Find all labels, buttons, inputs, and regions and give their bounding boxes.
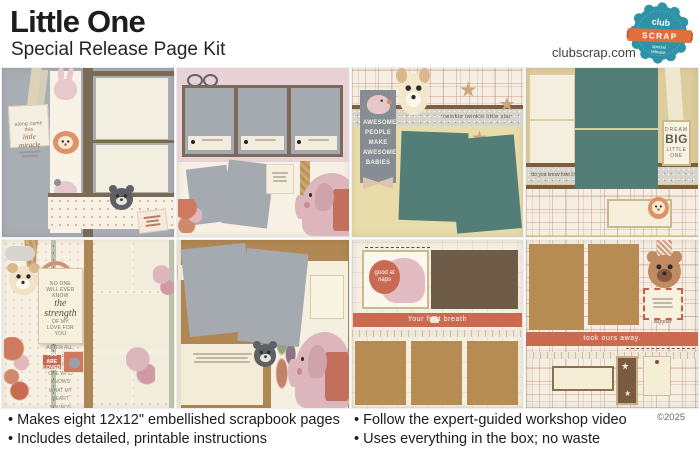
elephant-ear <box>308 345 327 378</box>
flower-cluster <box>126 347 155 387</box>
photo-placeholder <box>588 244 639 325</box>
elephant-blanket <box>333 189 349 231</box>
brown-tag <box>616 356 638 405</box>
fine-print <box>272 172 288 174</box>
layout-preview-2 <box>177 68 349 237</box>
fine-print <box>19 151 41 154</box>
photo-placeholder <box>575 68 658 128</box>
elephant-blanket <box>325 352 348 401</box>
photo-mat <box>96 243 131 290</box>
photo-placeholder <box>431 250 518 309</box>
bear-button-embellishment <box>110 188 132 210</box>
elephant-art-square <box>63 351 84 374</box>
flower-cluster <box>153 265 174 297</box>
journaling-block <box>181 344 263 405</box>
mini-tag <box>136 208 168 233</box>
quote-line: OF MY LOVE FOR YOU <box>44 319 76 337</box>
label-box <box>310 275 344 319</box>
feature-item: Follow the expert-guided workshop video <box>354 411 627 430</box>
feature-item: Uses everything in the box; no waste <box>354 430 627 449</box>
framed-art-square: good at naps <box>362 250 429 309</box>
quote-line-script: the strength <box>44 299 76 319</box>
fine-print <box>653 306 673 308</box>
triple-photo-frame <box>182 85 343 157</box>
layout-gallery: along came this little miracle <box>0 68 700 408</box>
fine-print <box>22 155 39 158</box>
washi-tape-strip <box>526 352 698 360</box>
stitch-garland <box>626 348 695 349</box>
fine-print <box>273 180 288 182</box>
photo-mat <box>530 75 575 119</box>
bunny-illustration <box>54 79 76 100</box>
page-subtitle: Special Release Page Kit <box>11 39 225 61</box>
tiger-tag <box>9 266 38 295</box>
layout-preview-1: along came this little miracle <box>2 68 174 237</box>
frame-line <box>93 140 174 144</box>
bear-tag <box>398 73 429 115</box>
copyright-notice: ©2025 <box>657 412 685 423</box>
elephant-cheek <box>297 368 303 375</box>
badge-text-scrap: SCRAP <box>642 30 678 41</box>
sentiment-banner: Awesome people make awesome babies <box>360 90 396 183</box>
sentiment-tag: along came this little miracle <box>8 104 50 148</box>
flower-cluster <box>178 199 202 233</box>
feature-item: Makes eight 12x12" embellished scrapbook… <box>8 411 340 430</box>
journaling-card <box>266 164 293 194</box>
label-plate <box>552 366 614 391</box>
frame-line <box>93 71 174 76</box>
layout-preview-4: do you know how LOVED you are? DREAM BIG… <box>526 68 698 237</box>
stitch-doodle <box>365 247 430 248</box>
lion-illustration <box>53 131 79 154</box>
banner-text: Awesome people make awesome babies <box>363 118 393 169</box>
photo-mat <box>96 294 169 350</box>
caption-banner: took ours away. <box>526 332 698 345</box>
cream-tag <box>643 356 670 396</box>
lion-embellishment <box>648 197 669 219</box>
cross-stitch-sentiment: happier <box>643 288 683 320</box>
tag-text-tiny: LITTLE ONE <box>664 147 689 159</box>
caption-banner: Your first breath <box>353 313 521 327</box>
photo-placeholder <box>185 88 234 154</box>
fine-print <box>193 353 252 355</box>
feature-item: Includes detailed, printable instruction… <box>8 430 340 449</box>
elephant-trunk <box>288 359 297 387</box>
photo-placeholder <box>237 248 308 347</box>
layout-preview-5: NO ONE WILL EVER KNOW the strength OF MY… <box>2 240 174 409</box>
layout-preview-8: happier took ours away. <box>526 240 698 409</box>
fine-print <box>146 219 159 223</box>
tag-text-large: BIG <box>664 133 689 146</box>
photo-placeholder <box>355 341 407 405</box>
photo-mat <box>96 78 168 139</box>
photo-placeholder <box>291 88 340 154</box>
website-url: clubscrap.com <box>552 45 636 60</box>
fine-print <box>145 223 160 227</box>
fine-print <box>652 298 673 300</box>
dream-big-tag: DREAM BIG LITTLE ONE <box>662 120 691 165</box>
you-are-loved-label: You are loved <box>42 354 63 370</box>
feature-list-left: Makes eight 12x12" embellished scrapbook… <box>8 411 340 449</box>
layout-preview-7: good at naps Your first breath <box>352 240 524 409</box>
photo-placeholder <box>449 134 522 234</box>
bear-button-embellishment <box>254 344 276 367</box>
cloud-illustration <box>5 246 34 261</box>
washi-tape-strip <box>352 330 524 338</box>
banner-text: Your first breath <box>408 316 467 323</box>
banner-text: took ours away. <box>583 335 641 342</box>
fine-print <box>308 139 329 141</box>
tag-text-script: little miracle <box>14 133 45 151</box>
layout-preview-6 <box>177 240 349 409</box>
fine-print <box>255 139 276 141</box>
duck-illustration <box>367 95 390 114</box>
layout-preview-3: twinkle twinkle little star Awesome peop… <box>352 68 524 237</box>
club-scrap-badge-logo: club SCRAP special release <box>624 0 695 68</box>
sentiment-word: happier <box>653 319 672 325</box>
fine-print <box>196 357 248 359</box>
badge-text-club: club <box>651 17 671 29</box>
page-title: Little One <box>10 4 145 40</box>
photo-label <box>188 136 230 150</box>
star-embellishment <box>622 362 629 370</box>
photo-mat <box>530 121 575 163</box>
elephant-illustration <box>299 162 349 236</box>
photo-label <box>295 136 337 150</box>
elephant-trunk <box>295 195 304 219</box>
fine-print <box>194 361 250 363</box>
star-embellishment <box>625 390 631 397</box>
photo-placeholder <box>238 88 287 154</box>
flower-cluster <box>4 337 30 401</box>
feature-list-right: Follow the expert-guided workshop video … <box>354 411 627 449</box>
badge-svg: club SCRAP special release <box>624 0 695 68</box>
elephant-ear <box>315 183 334 211</box>
photo-placeholder <box>467 341 519 405</box>
photo-label <box>241 136 283 150</box>
quote-card: NO ONE WILL EVER KNOW the strength OF MY… <box>38 268 83 344</box>
fine-print <box>144 215 160 219</box>
fine-print <box>653 302 672 304</box>
fine-print <box>202 139 223 141</box>
photo-placeholder <box>411 341 463 405</box>
quote-line: NO ONE WILL EVER KNOW <box>44 281 76 299</box>
photo-placeholder <box>529 244 584 330</box>
bear-tag <box>648 255 681 289</box>
elephant-eye <box>309 193 312 197</box>
brown-divider <box>84 240 93 409</box>
fine-print <box>273 176 286 178</box>
strip-caption: twinkle twinkle little star <box>443 114 511 120</box>
bow-decoration <box>363 177 393 189</box>
photo-placeholder <box>575 130 658 189</box>
